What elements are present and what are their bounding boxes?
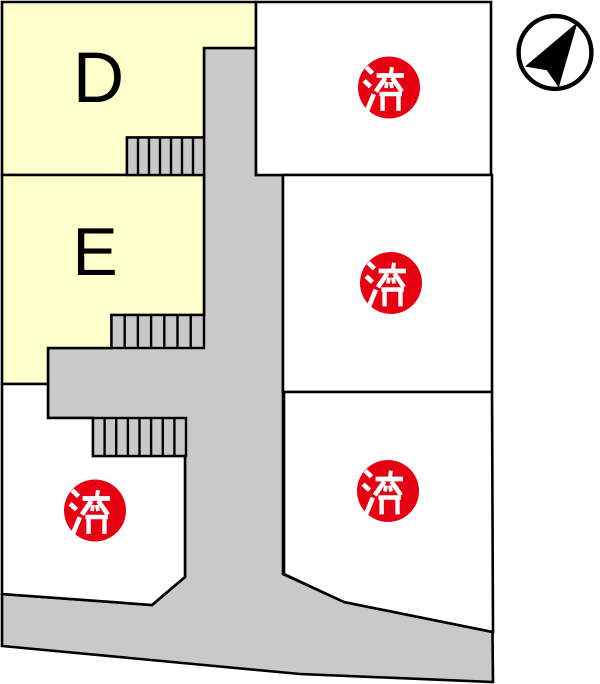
svg-text:D: D (73, 39, 124, 118)
svg-text:E: E (72, 214, 117, 290)
